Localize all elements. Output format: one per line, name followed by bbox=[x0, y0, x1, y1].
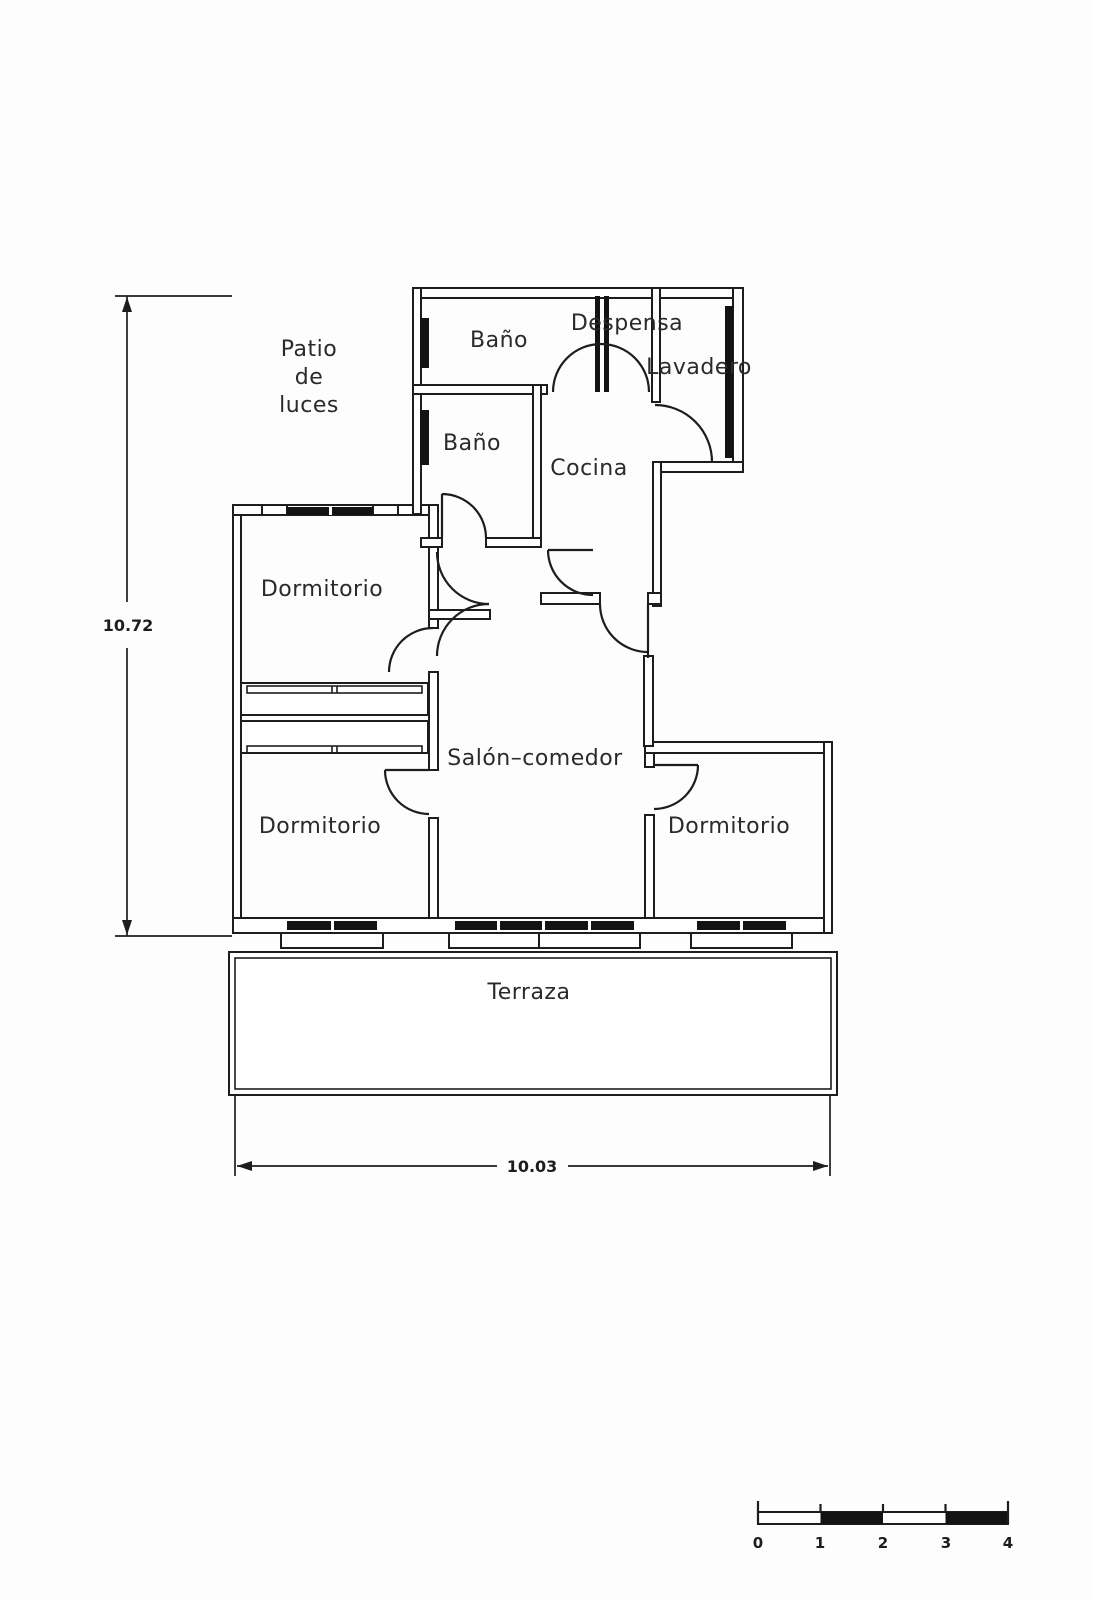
door-arc-dormitorio-tl bbox=[389, 628, 433, 672]
label-dormitorio-br: Dormitorio bbox=[668, 814, 790, 839]
scale-tick-3: 3 bbox=[941, 1534, 951, 1552]
wardrobes bbox=[241, 683, 428, 753]
window-bano-mid bbox=[420, 410, 429, 465]
label-lavadero: Lavadero bbox=[646, 355, 752, 380]
label-dormitorio-tl: Dormitorio bbox=[261, 577, 383, 602]
label-terraza: Terraza bbox=[487, 980, 571, 1005]
scale-tick-1: 1 bbox=[815, 1534, 825, 1552]
window-bano-top bbox=[420, 318, 429, 368]
arrow-left bbox=[237, 1161, 252, 1171]
arrow-right bbox=[813, 1161, 828, 1171]
label-dormitorio-bl: Dormitorio bbox=[259, 814, 381, 839]
room-labels: Patio de luces Baño Despensa Lavadero Ba… bbox=[259, 311, 790, 1005]
label-patio-line3: luces bbox=[279, 393, 339, 418]
arrow-down bbox=[122, 920, 132, 935]
arrow-up bbox=[122, 297, 132, 312]
door-arc-salon bbox=[600, 604, 648, 652]
scale-tick-2: 2 bbox=[878, 1534, 888, 1552]
door-arc-dormitorio-bl bbox=[385, 770, 429, 814]
label-patio-line1: Patio bbox=[281, 337, 337, 362]
label-salon: Salón–comedor bbox=[447, 746, 623, 771]
window-lavadero bbox=[725, 306, 733, 458]
door-arc-cocina bbox=[548, 550, 593, 595]
door-arc-bano bbox=[442, 494, 486, 538]
scale-tick-4: 4 bbox=[1003, 1534, 1013, 1552]
window-sill bbox=[281, 933, 383, 948]
door-arc-lavadero bbox=[655, 405, 712, 462]
label-despensa: Despensa bbox=[571, 311, 683, 336]
scale-tick-0: 0 bbox=[753, 1534, 763, 1552]
windows bbox=[262, 306, 792, 948]
floor-plan-drawing: 10.72 10.03 0 1 2 3 4 Patio de luces Bañ… bbox=[0, 0, 1094, 1600]
label-bano-top: Baño bbox=[470, 328, 528, 353]
floor-plan-canvas: 10.72 10.03 0 1 2 3 4 Patio de luces Bañ… bbox=[0, 0, 1094, 1600]
window-sill bbox=[691, 933, 792, 948]
terraza-walls bbox=[229, 952, 837, 1095]
window-sill bbox=[449, 933, 548, 948]
door-arc-hall-a bbox=[437, 552, 489, 604]
scale-bar: 0 1 2 3 4 bbox=[753, 1501, 1013, 1552]
dimension-width-label: 10.03 bbox=[507, 1157, 558, 1176]
label-patio-line2: de bbox=[295, 365, 324, 390]
dimension-height: 10.72 bbox=[103, 296, 232, 936]
window-sill bbox=[539, 933, 640, 948]
door-arc-despensa bbox=[553, 344, 649, 392]
label-cocina: Cocina bbox=[550, 456, 627, 481]
label-bano-mid: Baño bbox=[443, 431, 501, 456]
dimension-height-label: 10.72 bbox=[103, 616, 154, 635]
door-arc-dormitorio-br bbox=[654, 765, 698, 809]
dimension-width: 10.03 bbox=[235, 1095, 830, 1176]
